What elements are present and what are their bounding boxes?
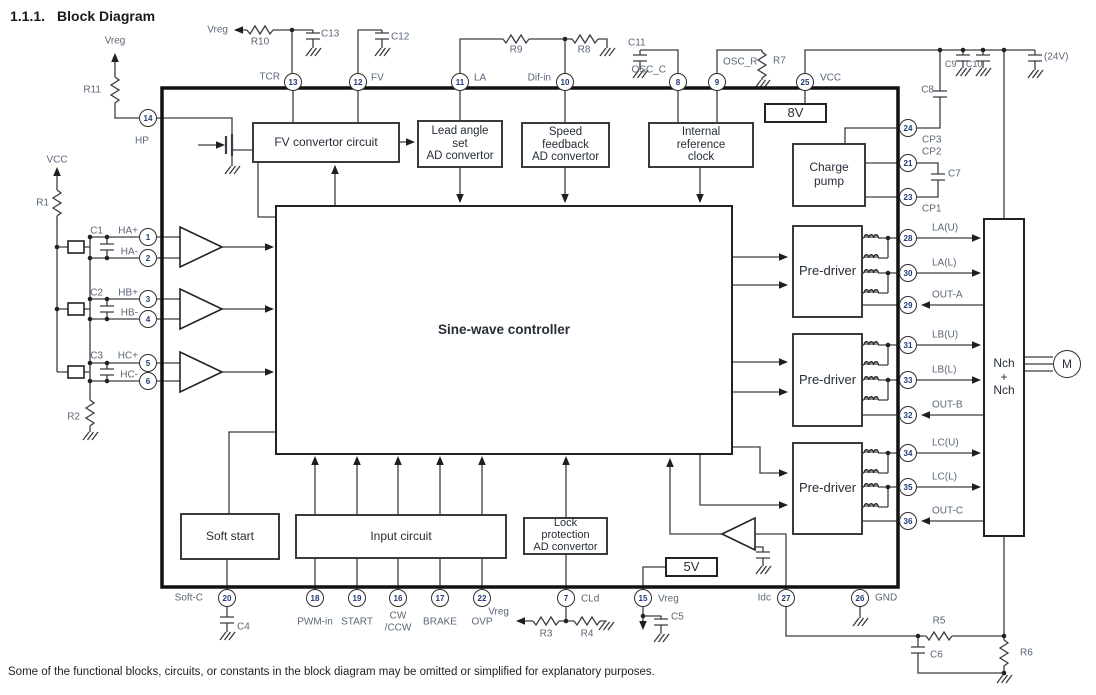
pin-18-pwmin: 18 — [306, 589, 324, 607]
label-r6: R6 — [1020, 648, 1033, 659]
block-charge-pump-line2: pump — [814, 175, 844, 189]
label-pin-hcm: HC- — [120, 370, 138, 381]
block-pre-driver-c: Pre-driver — [792, 442, 863, 535]
pin-20-softc: 20 — [218, 589, 236, 607]
label-pin-cp3: CP3 — [922, 135, 941, 146]
label-c13: C13 — [321, 29, 339, 40]
label-c6: C6 — [930, 650, 943, 661]
label-pin-hcp: HC+ — [118, 351, 138, 362]
label-c4: C4 — [237, 622, 250, 633]
label-pin-outa: OUT-A — [932, 290, 963, 301]
pin-31-lbu: 31 — [899, 336, 917, 354]
label-pin-outc: OUT-C — [932, 506, 963, 517]
pin-10-difin: 10 — [556, 73, 574, 91]
motor-symbol: M — [1053, 350, 1081, 378]
pin-33-lbl: 33 — [899, 371, 917, 389]
block-speed-line3: AD convertor — [532, 151, 599, 164]
label-c3: C3 — [90, 351, 103, 362]
motor-label: M — [1062, 357, 1072, 371]
label-pin-oscr: OSC_R — [723, 57, 757, 68]
label-c10: C10 — [966, 59, 983, 69]
heading-text: Block Diagram — [57, 8, 155, 24]
label-r2: R2 — [67, 412, 80, 423]
pin-16-cwccw: 16 — [389, 589, 407, 607]
label-pin-oscc: OSC_C — [632, 65, 666, 76]
pin-26-gnd: 26 — [851, 589, 869, 607]
pin-11-la: 11 — [451, 73, 469, 91]
label-c9: C9 — [945, 59, 957, 69]
block-clock-line2: reference — [677, 139, 726, 152]
block-nch-line1: Nch — [993, 357, 1014, 371]
pin-35-lcl: 35 — [899, 478, 917, 496]
block-8v-regulator: 8V — [764, 103, 827, 123]
label-vreg-r11: Vreg — [105, 36, 126, 47]
label-pin-lau: LA(U) — [932, 223, 958, 234]
label-pin-ham: HA- — [121, 247, 138, 258]
label-pin-hbm: HB- — [121, 308, 138, 319]
block-input-circuit: Input circuit — [295, 514, 507, 559]
pin-3-hbp: 3 — [139, 290, 157, 308]
label-c2: C2 — [90, 288, 103, 299]
label-pin-softc: Soft-C — [175, 593, 203, 604]
label-vreg-r10: Vreg — [207, 25, 228, 36]
pin-17-brake: 17 — [431, 589, 449, 607]
label-r8: R8 — [578, 45, 591, 56]
pin-25-vcc: 25 — [796, 73, 814, 91]
block-5v-regulator: 5V — [665, 557, 718, 577]
label-pin-lcl: LC(L) — [932, 472, 957, 483]
block-speed-line2: feedback — [542, 139, 589, 152]
label-pin-hbp: HB+ — [118, 288, 138, 299]
label-pin-pwmin: PWM-in — [297, 617, 333, 628]
label-pin-cld: CLd — [581, 594, 599, 605]
pin-22-ovp: 22 — [473, 589, 491, 607]
label-pin-difin: Dif-in — [528, 73, 551, 84]
label-pin-ovp: OVP — [471, 617, 492, 628]
label-r4: R4 — [581, 629, 594, 640]
footnote: Some of the functional blocks, circuits,… — [8, 666, 655, 678]
pin-36-outc: 36 — [899, 512, 917, 530]
heading-number: 1.1.1. — [10, 8, 45, 24]
label-pin-lcu: LC(U) — [932, 438, 959, 449]
label-vcc-hall: VCC — [46, 155, 67, 166]
label-r1: R1 — [36, 198, 49, 209]
block-pre-driver-c-label: Pre-driver — [799, 481, 856, 496]
pin-27-idc: 27 — [777, 589, 795, 607]
label-pin-tcr: TCR — [259, 72, 280, 83]
pin-14-hp: 14 — [139, 109, 157, 127]
pin-21-cp2: 21 — [899, 154, 917, 172]
block-soft-start: Soft start — [180, 513, 280, 560]
label-pin-cw: CW — [390, 611, 407, 622]
label-c5: C5 — [671, 612, 684, 623]
label-pin-hp: HP — [135, 136, 149, 147]
block-lead-angle-line1: Lead angle — [432, 125, 489, 138]
label-pin-cp1: CP1 — [922, 204, 941, 215]
block-nch-line3: Nch — [993, 384, 1014, 398]
pin-15-vreg: 15 — [634, 589, 652, 607]
pin-24-cp3: 24 — [899, 119, 917, 137]
pin-34-lcu: 34 — [899, 444, 917, 462]
label-c12: C12 — [391, 32, 409, 43]
label-pin-idc: Idc — [758, 593, 771, 604]
pin-6-hcm: 6 — [139, 372, 157, 390]
block-pre-driver-a: Pre-driver — [792, 225, 863, 318]
label-c8: C8 — [921, 85, 934, 96]
pin-8-oscc: 8 — [669, 73, 687, 91]
page-title: 1.1.1. Block Diagram — [10, 8, 155, 24]
label-r10: R10 — [251, 37, 269, 48]
pin-19-start: 19 — [348, 589, 366, 607]
block-lock-line3: AD convertor — [533, 542, 597, 554]
block-clock-line3: clock — [688, 151, 714, 164]
label-r7: R7 — [773, 56, 786, 67]
label-pin-start: START — [341, 617, 373, 628]
block-soft-start-label: Soft start — [206, 530, 254, 544]
label-vreg-r3: Vreg — [488, 607, 509, 618]
label-pin-cp2: CP2 — [922, 147, 941, 158]
block-charge-pump-line1: Charge — [809, 161, 848, 175]
pin-4-hbm: 4 — [139, 310, 157, 328]
block-diagram-page: 1.1.1. Block Diagram — [0, 0, 1096, 695]
label-pin-vcc: VCC — [820, 73, 841, 84]
block-lead-angle: Lead angle set AD convertor — [417, 120, 503, 168]
gate-resistor-coils — [864, 235, 878, 507]
pin-28-lau: 28 — [899, 229, 917, 247]
block-nch-line2: + — [1000, 371, 1007, 385]
block-speed-feedback: Speed feedback AD convertor — [521, 122, 610, 168]
pin-12-fv: 12 — [349, 73, 367, 91]
label-r9: R9 — [510, 45, 523, 56]
pin-13-tcr: 13 — [284, 73, 302, 91]
block-5v-label: 5V — [684, 560, 700, 575]
pin-7-cld: 7 — [557, 589, 575, 607]
label-pin-lal: LA(L) — [932, 258, 956, 269]
block-8v-label: 8V — [788, 106, 804, 121]
block-fv-label: FV convertor circuit — [274, 136, 377, 150]
block-lock-protection: Lock protection AD convertor — [523, 517, 608, 555]
label-pin-la: LA — [474, 73, 486, 84]
block-fv-convertor: FV convertor circuit — [252, 122, 400, 163]
block-lead-angle-line3: AD convertor — [426, 150, 493, 163]
label-r5: R5 — [933, 616, 946, 627]
label-c1: C1 — [90, 226, 103, 237]
pin-1-hap: 1 — [139, 228, 157, 246]
pin-29-outa: 29 — [899, 296, 917, 314]
block-sine-wave-controller: Sine-wave controller — [275, 205, 733, 455]
block-charge-pump: Charge pump — [792, 143, 866, 207]
label-pin-outb: OUT-B — [932, 400, 963, 411]
label-r3: R3 — [540, 629, 553, 640]
pin-9-oscr: 9 — [708, 73, 726, 91]
label-pin-hap: HA+ — [118, 226, 138, 237]
pin-2-ham: 2 — [139, 249, 157, 267]
label-24v: (24V) — [1044, 52, 1068, 63]
block-internal-clock: Internal reference clock — [648, 122, 754, 168]
label-c7: C7 — [948, 169, 961, 180]
label-pin-vreg15: Vreg — [658, 594, 679, 605]
block-input-circuit-label: Input circuit — [370, 530, 431, 544]
label-pin-ccw: /CCW — [385, 623, 412, 634]
block-nch-output-stage: Nch + Nch — [983, 218, 1025, 537]
label-pin-fv: FV — [371, 73, 384, 84]
block-lead-angle-line2: set — [452, 138, 467, 151]
pin-32-outb: 32 — [899, 406, 917, 424]
block-pre-driver-a-label: Pre-driver — [799, 264, 856, 279]
label-r11: R11 — [83, 85, 101, 96]
label-pin-lbu: LB(U) — [932, 330, 958, 341]
pin-23-cp1: 23 — [899, 188, 917, 206]
block-pre-driver-b-label: Pre-driver — [799, 373, 856, 388]
block-clock-line1: Internal — [682, 126, 720, 139]
label-c11: C11 — [628, 38, 646, 49]
block-speed-line1: Speed — [549, 126, 582, 139]
label-pin-brake: BRAKE — [423, 617, 457, 628]
label-pin-lbl: LB(L) — [932, 365, 956, 376]
label-pin-gnd: GND — [875, 593, 897, 604]
pin-30-lal: 30 — [899, 264, 917, 282]
pin-5-hcp: 5 — [139, 354, 157, 372]
block-sine-label: Sine-wave controller — [438, 322, 570, 338]
block-pre-driver-b: Pre-driver — [792, 333, 863, 427]
